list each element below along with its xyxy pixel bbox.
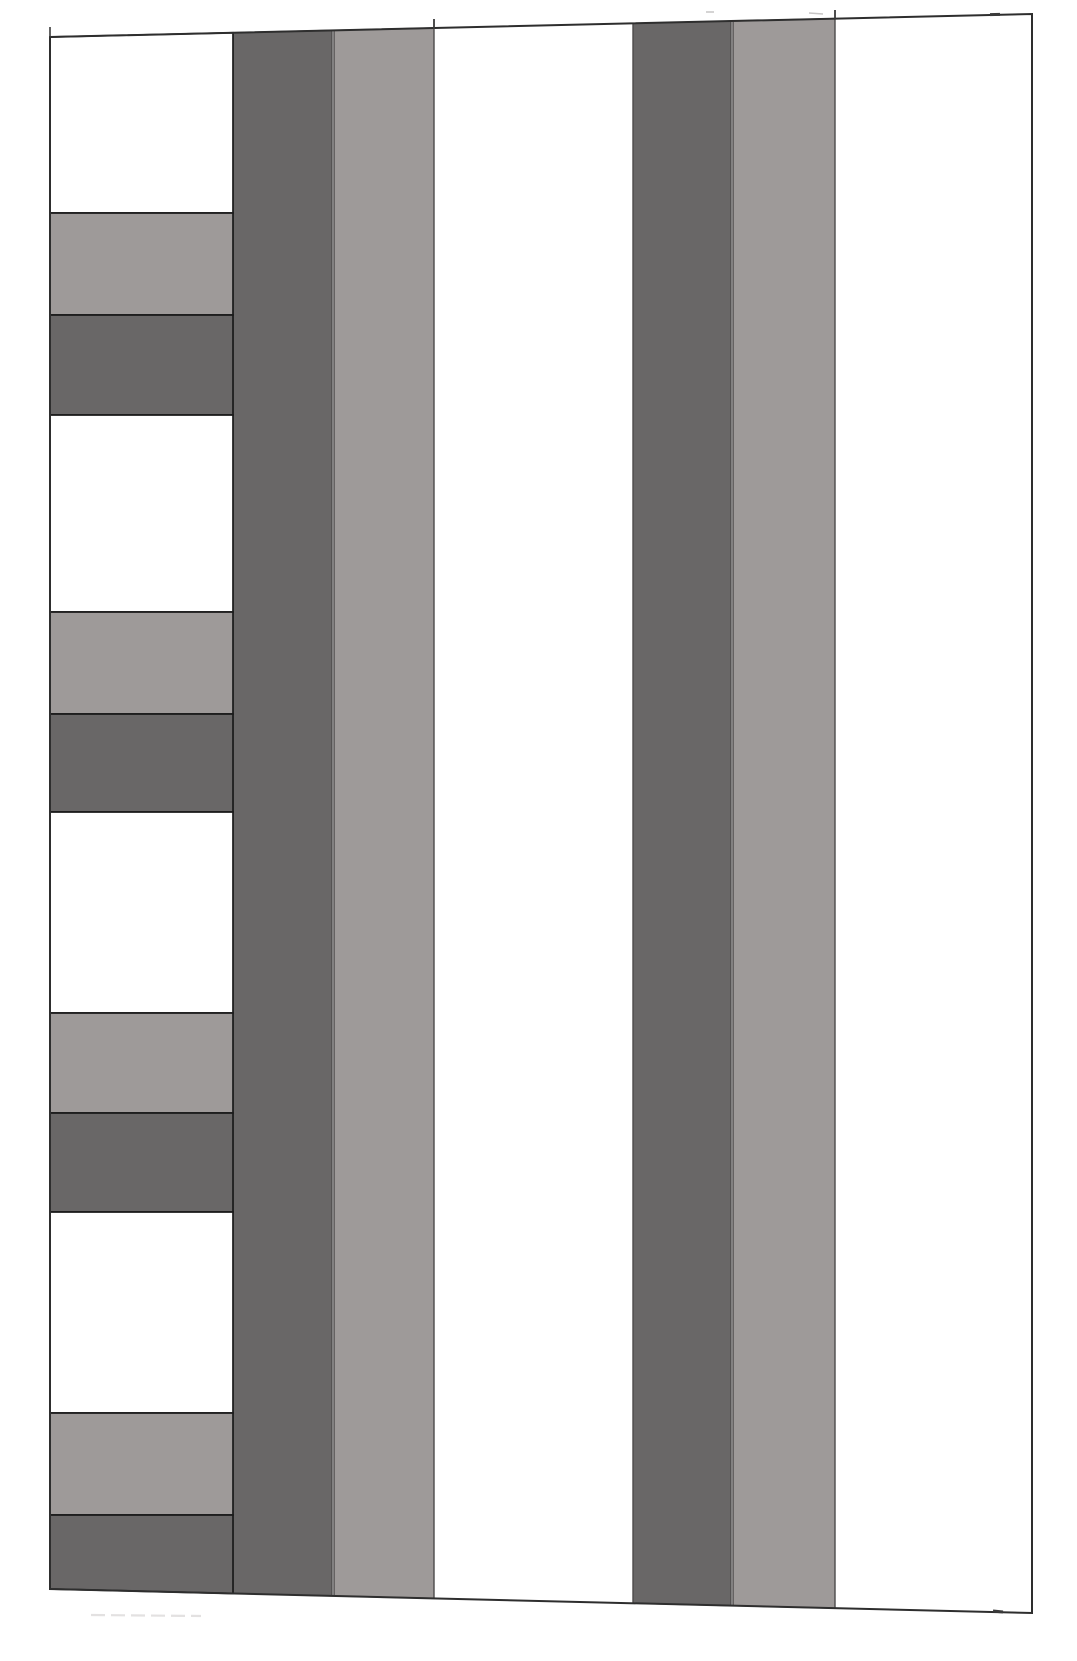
faint-line-bottom-left (91, 1615, 201, 1616)
left-column-band-white-7 (50, 812, 233, 1013)
vertical-stripe-medium-2 (334, 28, 434, 1598)
left-column-band-white-4 (50, 415, 233, 612)
vertical-stripe-dark-3 (633, 21, 731, 1606)
left-column-band-dark-3 (50, 315, 233, 415)
vertical-stripe-dark-1 (233, 30, 332, 1595)
left-column-band-medium-5 (50, 612, 233, 714)
left-column-band-medium-8 (50, 1013, 233, 1113)
vertical-stripe-medium-4 (733, 19, 835, 1609)
faint-dash-top-2 (809, 13, 823, 14)
striped-pattern-drawing (0, 0, 1077, 1661)
left-column-band-medium-11 (50, 1413, 233, 1515)
left-column-band-dark-6 (50, 714, 233, 812)
left-column-band-medium-2 (50, 213, 233, 315)
drawing-page (0, 0, 1077, 1661)
left-column-band-dark-12 (50, 1515, 233, 1593)
left-column-band-white-1 (50, 33, 233, 213)
left-column-band-white-10 (50, 1212, 233, 1413)
left-column-band-dark-9 (50, 1113, 233, 1212)
border-tick-bottom-right (993, 1611, 1003, 1612)
